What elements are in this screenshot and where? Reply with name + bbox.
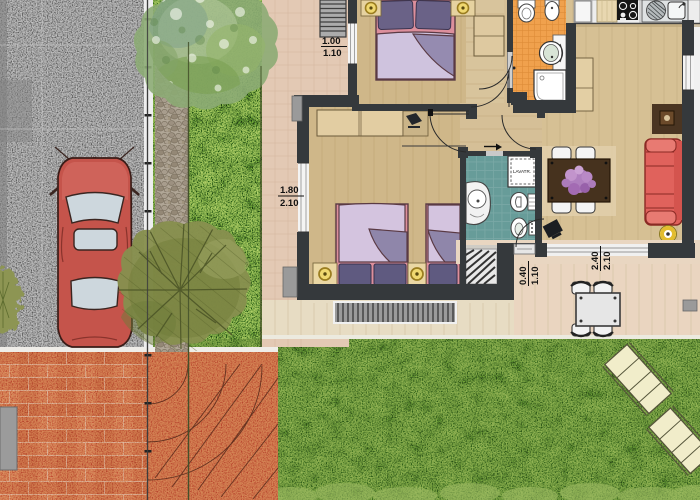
- svg-text:1.10: 1.10: [323, 48, 342, 59]
- svg-text:1.80: 1.80: [280, 185, 299, 196]
- svg-text:2.40: 2.40: [590, 252, 601, 271]
- svg-text:2.10: 2.10: [280, 198, 299, 209]
- svg-text:2.10: 2.10: [602, 252, 613, 271]
- svg-text:1.00: 1.00: [322, 36, 341, 47]
- svg-text:LAVATR.: LAVATR.: [513, 169, 531, 174]
- svg-text:0.40: 0.40: [518, 267, 529, 286]
- svg-text:1.10: 1.10: [530, 267, 541, 286]
